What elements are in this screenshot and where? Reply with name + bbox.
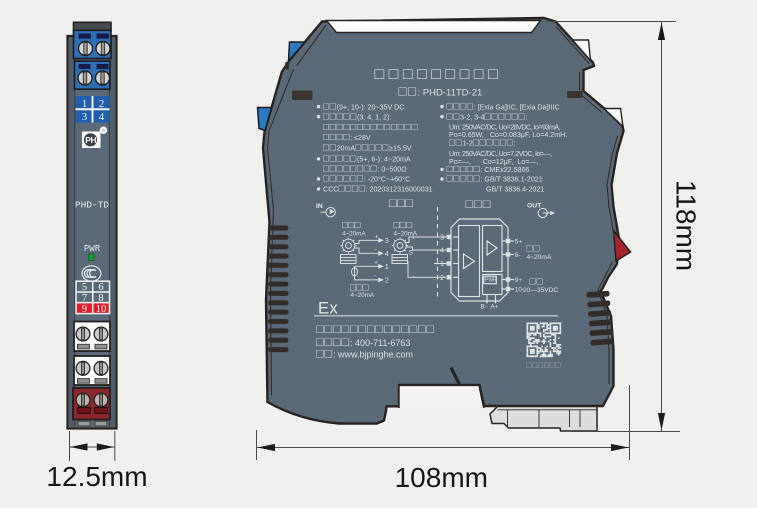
svg-text:1: 1: [385, 262, 389, 271]
svg-text:-: -: [374, 247, 376, 254]
svg-text:-: -: [413, 273, 415, 280]
svg-text:□□: □□: [527, 243, 541, 254]
svg-text:R: R: [102, 128, 106, 134]
svg-text:5: 5: [82, 282, 87, 293]
svg-text:4: 4: [99, 111, 105, 123]
svg-text:□□□□□□: □□□□□□: [527, 361, 562, 370]
svg-text:2: 2: [385, 276, 389, 285]
svg-text:+: +: [375, 233, 379, 240]
svg-text:OUT: OUT: [527, 203, 542, 210]
svg-text:3: 3: [385, 236, 389, 245]
svg-text:108mm: 108mm: [395, 462, 488, 493]
svg-text:4: 4: [385, 249, 389, 258]
svg-text:10: 10: [96, 304, 107, 315]
svg-text:B-: B-: [481, 304, 487, 311]
svg-text:S: S: [409, 250, 413, 257]
svg-text:PWR: PWR: [485, 278, 497, 284]
svg-text:IN: IN: [316, 203, 323, 210]
svg-text:A+: A+: [491, 304, 499, 311]
svg-text:-: -: [374, 273, 376, 280]
svg-text:12.5mm: 12.5mm: [46, 461, 147, 492]
svg-text:+: +: [374, 260, 378, 267]
svg-text:4~20mA: 4~20mA: [342, 230, 366, 237]
svg-text:20—35VDC: 20—35VDC: [523, 287, 558, 294]
svg-text:2: 2: [99, 98, 105, 110]
svg-text:□□: □□: [530, 277, 544, 288]
svg-text:5+: 5+: [515, 238, 523, 245]
svg-text:8: 8: [98, 293, 103, 304]
svg-text:PHD-TD: PHD-TD: [75, 200, 110, 211]
svg-text:□□□□□□: -20°C~+60°C: □□□□□□: -20°C~+60°C: [323, 174, 410, 185]
svg-text:4~20mA: 4~20mA: [394, 230, 418, 237]
svg-text:Ex: Ex: [318, 300, 339, 318]
svg-text:□□□□□: GB/T 3836.1-2021: □□□□□: GB/T 3836.1-2021: [447, 174, 543, 185]
svg-text:9+: 9+: [515, 277, 523, 284]
svg-text:CCC□□□□: 2020312316000031: CCC□□□□: 2020312316000031: [323, 184, 433, 195]
svg-text:3: 3: [440, 235, 444, 242]
svg-text:1: 1: [440, 261, 444, 268]
svg-text:PWR: PWR: [84, 244, 101, 254]
svg-text:1: 1: [82, 98, 88, 110]
svg-text:□□□: □□□: [389, 195, 414, 210]
svg-text:2: 2: [440, 275, 444, 282]
svg-text:□□□□□□□□□: □□□□□□□□□: [375, 65, 503, 83]
svg-text:4~20mA: 4~20mA: [351, 292, 375, 299]
svg-text:□□20mA□□□□□≥15.5V: □□20mA□□□□□≥15.5V: [323, 142, 412, 153]
svg-text:□□3-2, 3-4□□□□□□:: □□3-2, 3-4□□□□□□:: [447, 111, 528, 122]
svg-text:9: 9: [82, 304, 87, 315]
svg-text:PH: PH: [85, 135, 96, 145]
svg-text:GB/T 3836.4-2021: GB/T 3836.4-2021: [486, 186, 544, 194]
svg-text:Um: 250VAC/DC, Uo=7.2VDC, Io=—: Um: 250VAC/DC, Uo=7.2VDC, Io=—,: [449, 150, 552, 158]
svg-text:□□□: □□□: [466, 196, 492, 211]
svg-text:6: 6: [98, 282, 103, 293]
svg-text:6-: 6-: [515, 252, 521, 259]
svg-text:4: 4: [440, 248, 444, 255]
svg-text:118mm: 118mm: [671, 180, 702, 271]
svg-text:□□1-2□□□□□□:: □□1-2□□□□□□:: [449, 138, 516, 149]
svg-text:□□□□□(3, 4, 1, 2):: □□□□□(3, 4, 1, 2):: [323, 111, 391, 122]
svg-text:3: 3: [82, 111, 88, 123]
svg-text:7: 7: [82, 293, 87, 304]
svg-text:4~20mA: 4~20mA: [527, 254, 552, 261]
